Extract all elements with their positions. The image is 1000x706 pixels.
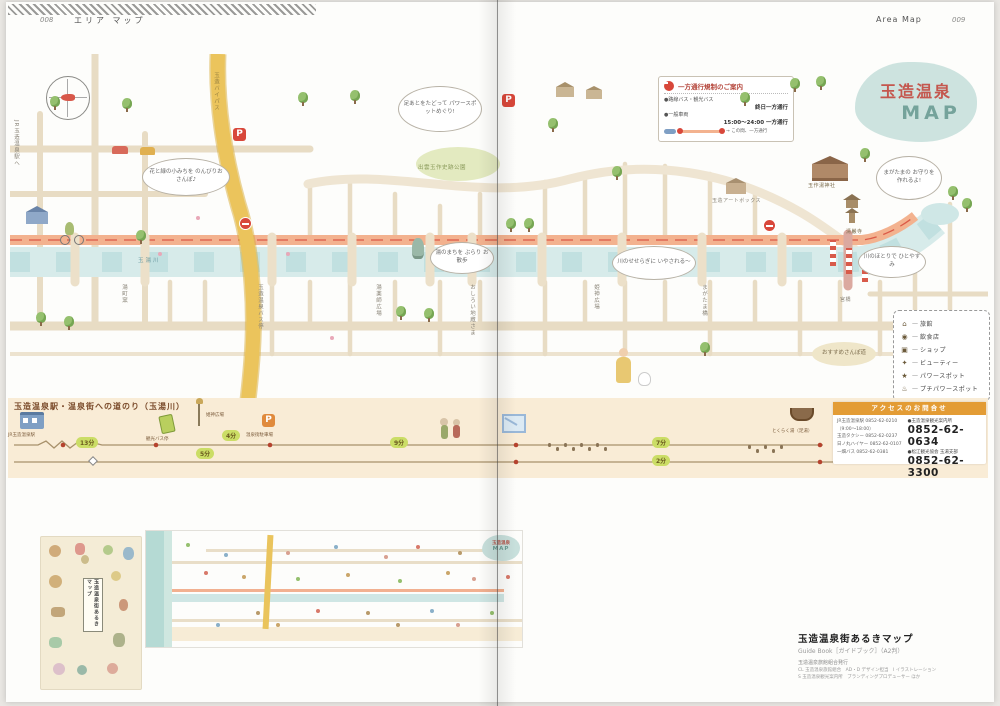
inn-building-icon xyxy=(26,206,48,224)
footprint-dot xyxy=(572,447,575,451)
cover-doodle xyxy=(49,637,62,648)
townhouse-icon-1 xyxy=(556,82,574,97)
speech-bubble-rest: 川のほとりで ひとやすみ xyxy=(858,246,926,278)
mini-road-mid xyxy=(172,561,522,564)
shop-icon: ▣ xyxy=(899,346,910,354)
power-spot-icon: ★ xyxy=(899,372,910,380)
mini-map-speck xyxy=(396,623,400,627)
miyabashi-label: 宮橋 xyxy=(840,296,851,303)
cover-title-box: 玉造温泉街あるきマップ xyxy=(83,578,103,632)
footprint-dot xyxy=(780,445,783,449)
river-pond xyxy=(921,203,959,225)
booklet-cover-thumbnail: 玉造温泉街あるきマップ xyxy=(40,536,142,690)
no-entry-icon xyxy=(664,81,674,91)
map-legend-box: ⌂— 旅館 ◉— 飲食店 ▣— ショップ ✦— ビューティー ★— パワースポッ… xyxy=(893,310,990,402)
legend-row-restaurant: ◉— 飲食店 xyxy=(899,330,984,343)
mini-river xyxy=(172,594,504,602)
time-pill-2: 2分 xyxy=(652,455,670,466)
artbox-building-icon xyxy=(726,178,746,194)
speech-bubble-stroll: 花と緑の小みちを のんびりおさんぽ♪ xyxy=(142,158,230,196)
mini-map-speck xyxy=(186,543,190,547)
oneway-info-box: 一方通行規制のご案内 ●路線バス・観光バス 終日一方通行 ●一般車両 15:00… xyxy=(658,76,794,142)
right-folio: 009 xyxy=(952,16,965,24)
time-pill-5: 5分 xyxy=(196,448,214,459)
tree-icon xyxy=(396,306,406,317)
strolling-woman-figure xyxy=(616,348,631,383)
cover-doodle xyxy=(119,599,128,611)
mini-map-speck xyxy=(296,577,300,581)
tree-icon xyxy=(612,166,622,177)
oneway-row2-value: 15:00〜24:00 一方通行 xyxy=(664,118,788,126)
kiln-label: 湯町窯 xyxy=(120,284,128,304)
tree-icon xyxy=(700,342,710,353)
caption-subtitle: Guide Book［ガイドブック］（A2判） xyxy=(798,646,903,655)
bus-sign-label: 観光バス停 xyxy=(146,436,169,442)
footprint-dot xyxy=(556,447,559,451)
mini-map-speck xyxy=(416,545,420,549)
mini-map-speck xyxy=(276,623,280,627)
flower-dot xyxy=(330,336,334,340)
tree-icon xyxy=(790,78,800,89)
book-spread-photo: 008 エリア マップ Area Map 009 xyxy=(0,0,1000,706)
mini-map-speck xyxy=(456,623,460,627)
tree-icon xyxy=(948,186,958,197)
yellow-car-icon xyxy=(140,147,155,155)
cover-doodle xyxy=(75,543,85,555)
white-cat-figure xyxy=(638,372,651,386)
footprint-dot xyxy=(604,447,607,451)
footprint-dot xyxy=(596,443,599,447)
cover-doodle xyxy=(77,665,87,675)
river-label: 玉湯川 xyxy=(138,256,161,264)
cover-doodle xyxy=(49,545,61,557)
footprint-dot xyxy=(588,447,591,451)
mini-map-speck xyxy=(384,555,388,559)
cyclist-figure xyxy=(60,222,84,245)
cover-doodle xyxy=(103,545,113,555)
cover-doodle xyxy=(123,547,134,560)
path-note-blob: おすすめさんぽ道 xyxy=(812,342,876,366)
mini-map-speck xyxy=(398,579,402,583)
speech-bubble-powerspot: 足あとをたどって パワースポットめぐり! xyxy=(398,86,482,132)
cover-title-text: 玉造温泉街あるきマップ xyxy=(86,579,100,631)
no-entry-sign-right xyxy=(764,220,775,231)
footprint-dot xyxy=(756,449,759,453)
time-pill-7: 7分 xyxy=(652,437,670,448)
mini-map-speck xyxy=(346,573,350,577)
magatama-bridge-label: まがたま橋 xyxy=(700,284,708,317)
caption-credits-2: S 玉造温泉観光案内所 ブランディングプロデューサー ほか xyxy=(798,674,920,680)
caption-title: 玉造温泉街あるきマップ xyxy=(798,631,914,645)
caption-publisher: 玉造温泉旅館組合発行 xyxy=(798,659,848,666)
legend-row-petit-powerspot: ♨— プチパワースポット xyxy=(899,382,984,395)
beauty-icon: ✦ xyxy=(899,359,910,367)
tree-icon xyxy=(548,118,558,129)
mini-map-speck xyxy=(446,571,450,575)
cover-doodle xyxy=(53,663,65,675)
tree-icon xyxy=(298,92,308,103)
footprint-dot xyxy=(748,445,751,449)
artbox-label: 玉造アートボックス xyxy=(712,197,761,204)
stone-lantern-icon xyxy=(843,194,861,223)
tree-icon xyxy=(36,312,46,323)
mini-map-speck xyxy=(242,575,246,579)
tree-icon xyxy=(122,98,132,109)
mini-road-bottom xyxy=(172,619,522,622)
tree-icon xyxy=(64,316,74,327)
legend-row-beauty: ✦— ビューティー xyxy=(899,356,984,369)
cover-doodle xyxy=(113,633,125,647)
access-office-phone: 0852-62-0634 xyxy=(908,424,982,448)
time-pill-13: 13分 xyxy=(76,437,98,448)
access-line-1: JR玉造温泉駅 0852-62-0210 xyxy=(837,418,904,426)
tree-icon xyxy=(962,198,972,209)
miyabashi-post-1 xyxy=(830,240,836,266)
station-label: JR玉造温泉駅 xyxy=(8,432,35,438)
oneway-row1-label: ●路線バス・観光バス xyxy=(664,96,788,103)
mini-map-speck xyxy=(204,571,208,575)
shrine-building-icon xyxy=(812,156,848,181)
map-title-english: MAP xyxy=(885,102,977,124)
mini-oneway-road xyxy=(172,589,504,592)
speech-bubble-river: 川のせせらぎに いやされる〜 xyxy=(612,246,696,280)
route-diamond-marker xyxy=(89,457,97,465)
legend-row-powerspot: ★— パワースポット xyxy=(899,369,984,382)
to-station-label: JR玉造温泉駅へ xyxy=(12,120,20,166)
mini-lakeshore xyxy=(164,531,172,647)
footbath-tub-icon xyxy=(790,408,814,421)
mini-map-speck xyxy=(316,609,320,613)
mini-map-speck xyxy=(256,611,260,615)
left-section-title: エリア マップ xyxy=(74,15,146,26)
mini-map-speck xyxy=(366,611,370,615)
tree-icon xyxy=(424,308,434,319)
footprint-dot xyxy=(580,443,583,447)
shrine-label: 玉作湯神社 xyxy=(808,182,836,189)
jizo-label: おしろい地蔵さま xyxy=(468,284,476,336)
mini-map-speck xyxy=(472,577,476,581)
parking-sign-left: P xyxy=(233,128,246,141)
tree-icon xyxy=(860,148,870,159)
ryokan-icon: ⌂ xyxy=(899,320,910,328)
route-stop-dots xyxy=(61,443,823,465)
oneway-sample-line xyxy=(679,130,723,133)
onsen-parking-icon: P xyxy=(262,414,275,427)
mini-map-speck xyxy=(216,623,220,627)
compass-needle xyxy=(61,94,75,101)
bypass-label: 玉造バイパス xyxy=(212,72,220,111)
tree-icon xyxy=(136,230,146,241)
restaurant-icon: ◉ xyxy=(899,333,910,341)
river-statue-icon xyxy=(412,238,424,259)
tree-icon xyxy=(816,76,826,87)
access-header: アクセスのお問合せ xyxy=(833,402,986,415)
mini-route-strip xyxy=(172,627,522,641)
miyabashi-post-2 xyxy=(846,248,852,274)
right-section-title: Area Map xyxy=(876,15,922,24)
access-right-column: ●玉造温泉観光案内所 0852-62-0634 ●松江観光協会 玉湯支部 085… xyxy=(908,418,982,479)
access-assoc-phone: 0852-62-3300 xyxy=(908,455,982,479)
flower-dot xyxy=(286,252,290,256)
himegami-square-label: 姫神広場 xyxy=(592,284,600,310)
access-left-column: JR玉造温泉駅 0852-62-0210 （9:00〜18:00） 玉造タクシー… xyxy=(837,418,904,479)
caption-credits-1: CL 玉造温泉旅館組合 AD・D デザイン担当 I イラストレーション xyxy=(798,667,936,673)
flower-dot xyxy=(158,252,162,256)
lamppost-icon xyxy=(198,404,200,426)
no-entry-sign-left xyxy=(240,218,251,229)
cover-doodle xyxy=(81,555,89,564)
cover-doodle xyxy=(107,663,118,674)
parking-label: 温泉街駐車場 xyxy=(246,432,273,438)
temple-label: 清巌寺 xyxy=(846,228,863,235)
oneway-title: 一方通行規制のご案内 xyxy=(678,81,743,91)
gutter-fold-line xyxy=(497,0,498,706)
townhouse-icon-2 xyxy=(586,86,602,99)
access-line-4: 日ノ丸ハイヤー 0852-62-0107 xyxy=(837,441,904,449)
map-title-japanese: 玉造温泉 xyxy=(855,78,977,102)
flower-dot xyxy=(196,216,200,220)
mini-map-speck xyxy=(430,609,434,613)
access-line-3: 玉造タクシー 0852-62-0237 xyxy=(837,433,904,441)
left-folio: 008 xyxy=(40,16,53,24)
himegami-strip-label: 姫神広場 xyxy=(206,412,224,418)
footprint-dot xyxy=(764,445,767,449)
map-title-blob: 玉造温泉 MAP xyxy=(855,62,977,142)
legend-row-shop: ▣— ショップ xyxy=(899,343,984,356)
header-hatch-strip xyxy=(8,4,316,15)
cover-doodle xyxy=(51,607,65,617)
history-park-label: 出雲玉作史跡公園 xyxy=(418,163,466,171)
petit-power-spot-icon: ♨ xyxy=(899,385,910,393)
footprint-dot xyxy=(772,449,775,453)
red-car-icon xyxy=(112,146,128,154)
tree-icon xyxy=(50,96,60,107)
train-station-icon xyxy=(20,412,44,429)
legend-row-ryokan: ⌂— 旅館 xyxy=(899,317,984,330)
footbath-label: とくらく湯（足湯） xyxy=(772,428,812,434)
tree-icon xyxy=(506,218,516,229)
mini-map-speck xyxy=(334,545,338,549)
busstop-label: 玉造温泉バス停 xyxy=(256,284,264,330)
oneway-note: → この間、一方通行 xyxy=(726,128,767,134)
tree-icon xyxy=(740,92,750,103)
footprint-dot xyxy=(564,443,567,447)
time-pill-4: 4分 xyxy=(222,430,240,441)
yuyakushi-label: 湯薬師広場 xyxy=(374,284,382,317)
time-pill-9: 9分 xyxy=(390,437,408,448)
cover-doodle xyxy=(49,575,62,588)
oneway-row1-value: 終日一方通行 xyxy=(664,103,788,111)
mini-map-speck xyxy=(286,551,290,555)
footprint-dot xyxy=(548,443,551,447)
access-line-5: 一畑バス 0852-62-0381 xyxy=(837,449,904,457)
cover-doodle xyxy=(111,571,121,581)
access-info-box: アクセスのお問合せ JR玉造温泉駅 0852-62-0210 （9:00〜18:… xyxy=(833,402,986,464)
folded-map-thumbnail: 玉造温泉 MAP xyxy=(145,530,523,648)
bus-capsule-icon xyxy=(664,129,676,134)
oneway-row2-label: ●一般車両 xyxy=(664,111,788,118)
access-line-2: （9:00〜18:00） xyxy=(837,426,904,434)
mini-map-speck xyxy=(224,553,228,557)
tree-icon xyxy=(524,218,534,229)
tree-icon xyxy=(350,90,360,101)
speech-bubble-magatama: まがたまの お守りを 作れるよ! xyxy=(876,156,942,200)
mini-map-speck xyxy=(458,551,462,555)
